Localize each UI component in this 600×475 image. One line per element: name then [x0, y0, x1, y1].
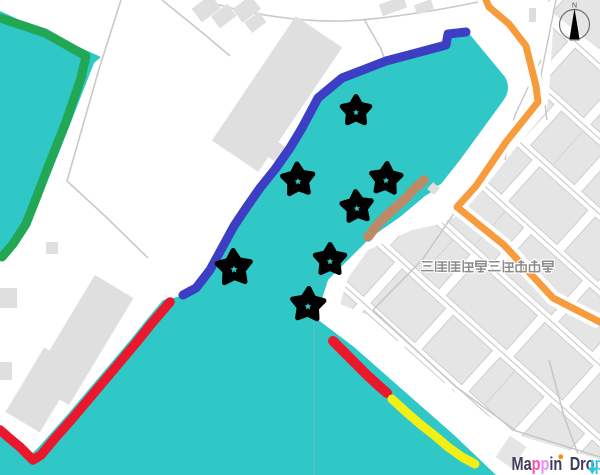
svg-text:Mappin' Drop: Mappin' Drop — [512, 453, 600, 474]
svg-text:N: N — [572, 3, 577, 10]
